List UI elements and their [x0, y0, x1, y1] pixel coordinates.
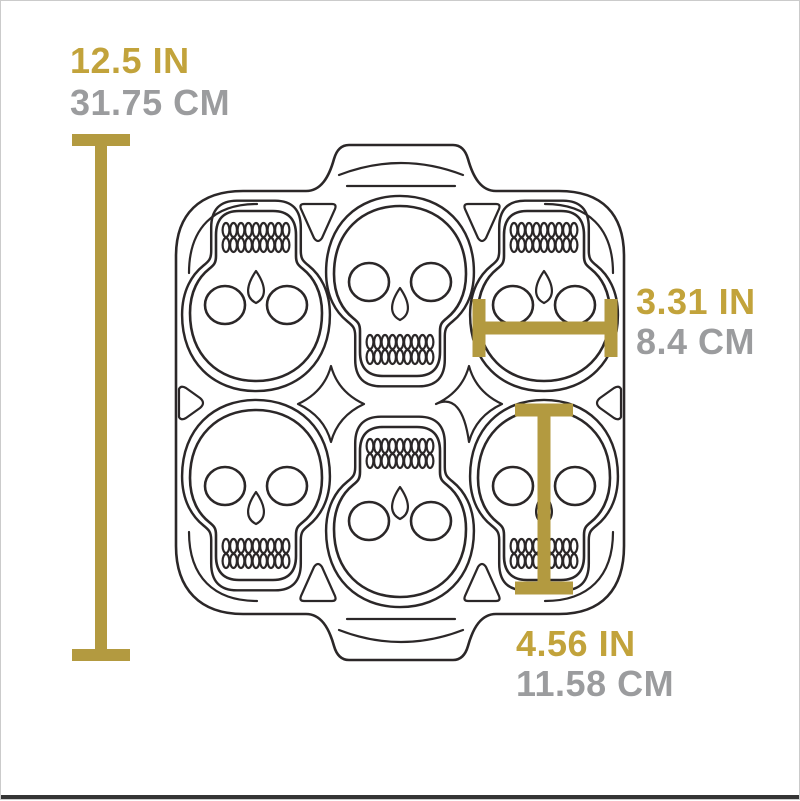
skull-cavity	[326, 196, 474, 386]
skull-cavity	[326, 417, 474, 607]
top-handle	[339, 163, 463, 186]
overall-height-centimeters: 31.75 CM	[70, 82, 230, 124]
image-bottom-edge-bar	[1, 795, 799, 799]
cavity-height-dimension-line	[515, 410, 573, 588]
skull-cavity	[182, 201, 330, 391]
bottom-handle	[339, 619, 463, 642]
cavity-width-label: 3.31 IN 8.4 CM	[636, 282, 756, 362]
cavity-height-inches: 4.56 IN	[516, 624, 674, 664]
overall-height-dimension-line	[72, 140, 130, 655]
dimension-diagram: 12.5 IN 31.75 CM 3.31 IN 8.4 CM 4.56 IN …	[1, 1, 799, 799]
cavity-width-centimeters: 8.4 CM	[636, 322, 756, 362]
cavity-height-label: 4.56 IN 11.58 CM	[516, 624, 674, 704]
overall-height-inches: 12.5 IN	[70, 40, 230, 82]
cutout-diamonds	[298, 366, 502, 442]
overall-height-label: 12.5 IN 31.75 CM	[70, 40, 230, 124]
skull-cavity	[182, 400, 330, 590]
cavity-width-inches: 3.31 IN	[636, 282, 756, 322]
cavity-height-centimeters: 11.58 CM	[516, 664, 674, 704]
skull-noses	[248, 271, 552, 524]
skull-cavity	[470, 201, 618, 391]
